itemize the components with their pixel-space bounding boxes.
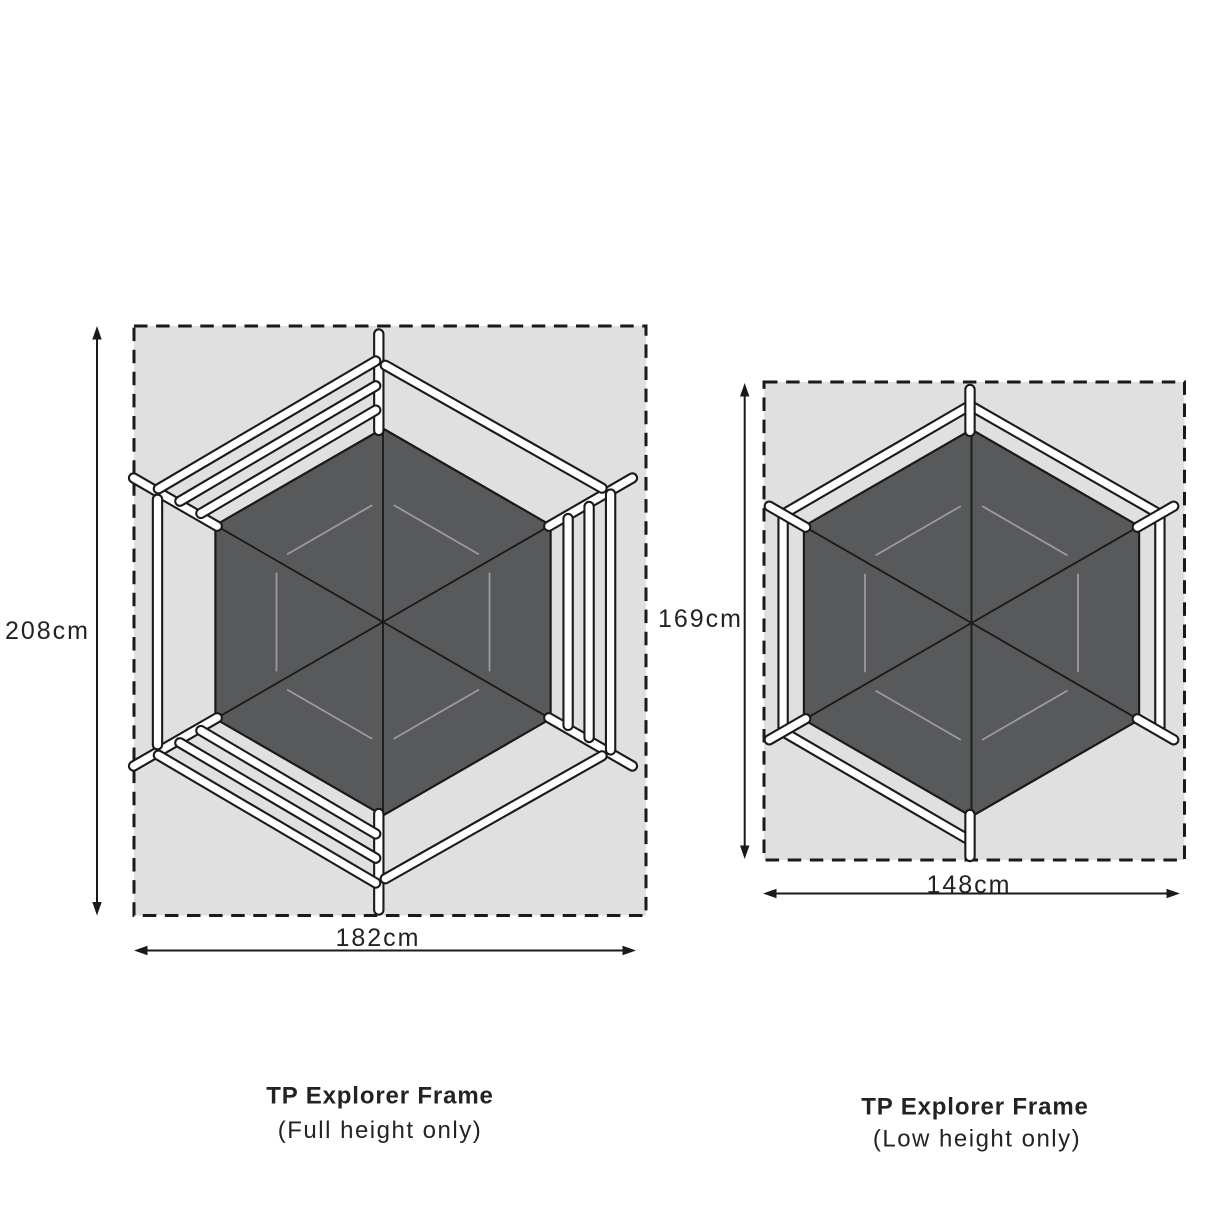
svg-text:TP Explorer Frame: TP Explorer Frame bbox=[861, 1094, 1088, 1121]
svg-text:(Full height only): (Full height only) bbox=[278, 1117, 482, 1144]
svg-text:182cm: 182cm bbox=[335, 924, 420, 952]
svg-text:148cm: 148cm bbox=[926, 871, 1011, 899]
svg-text:(Low height only): (Low height only) bbox=[873, 1126, 1081, 1153]
svg-text:208cm: 208cm bbox=[5, 617, 90, 645]
svg-text:169cm: 169cm bbox=[658, 605, 743, 633]
svg-text:TP Explorer Frame: TP Explorer Frame bbox=[266, 1083, 493, 1110]
